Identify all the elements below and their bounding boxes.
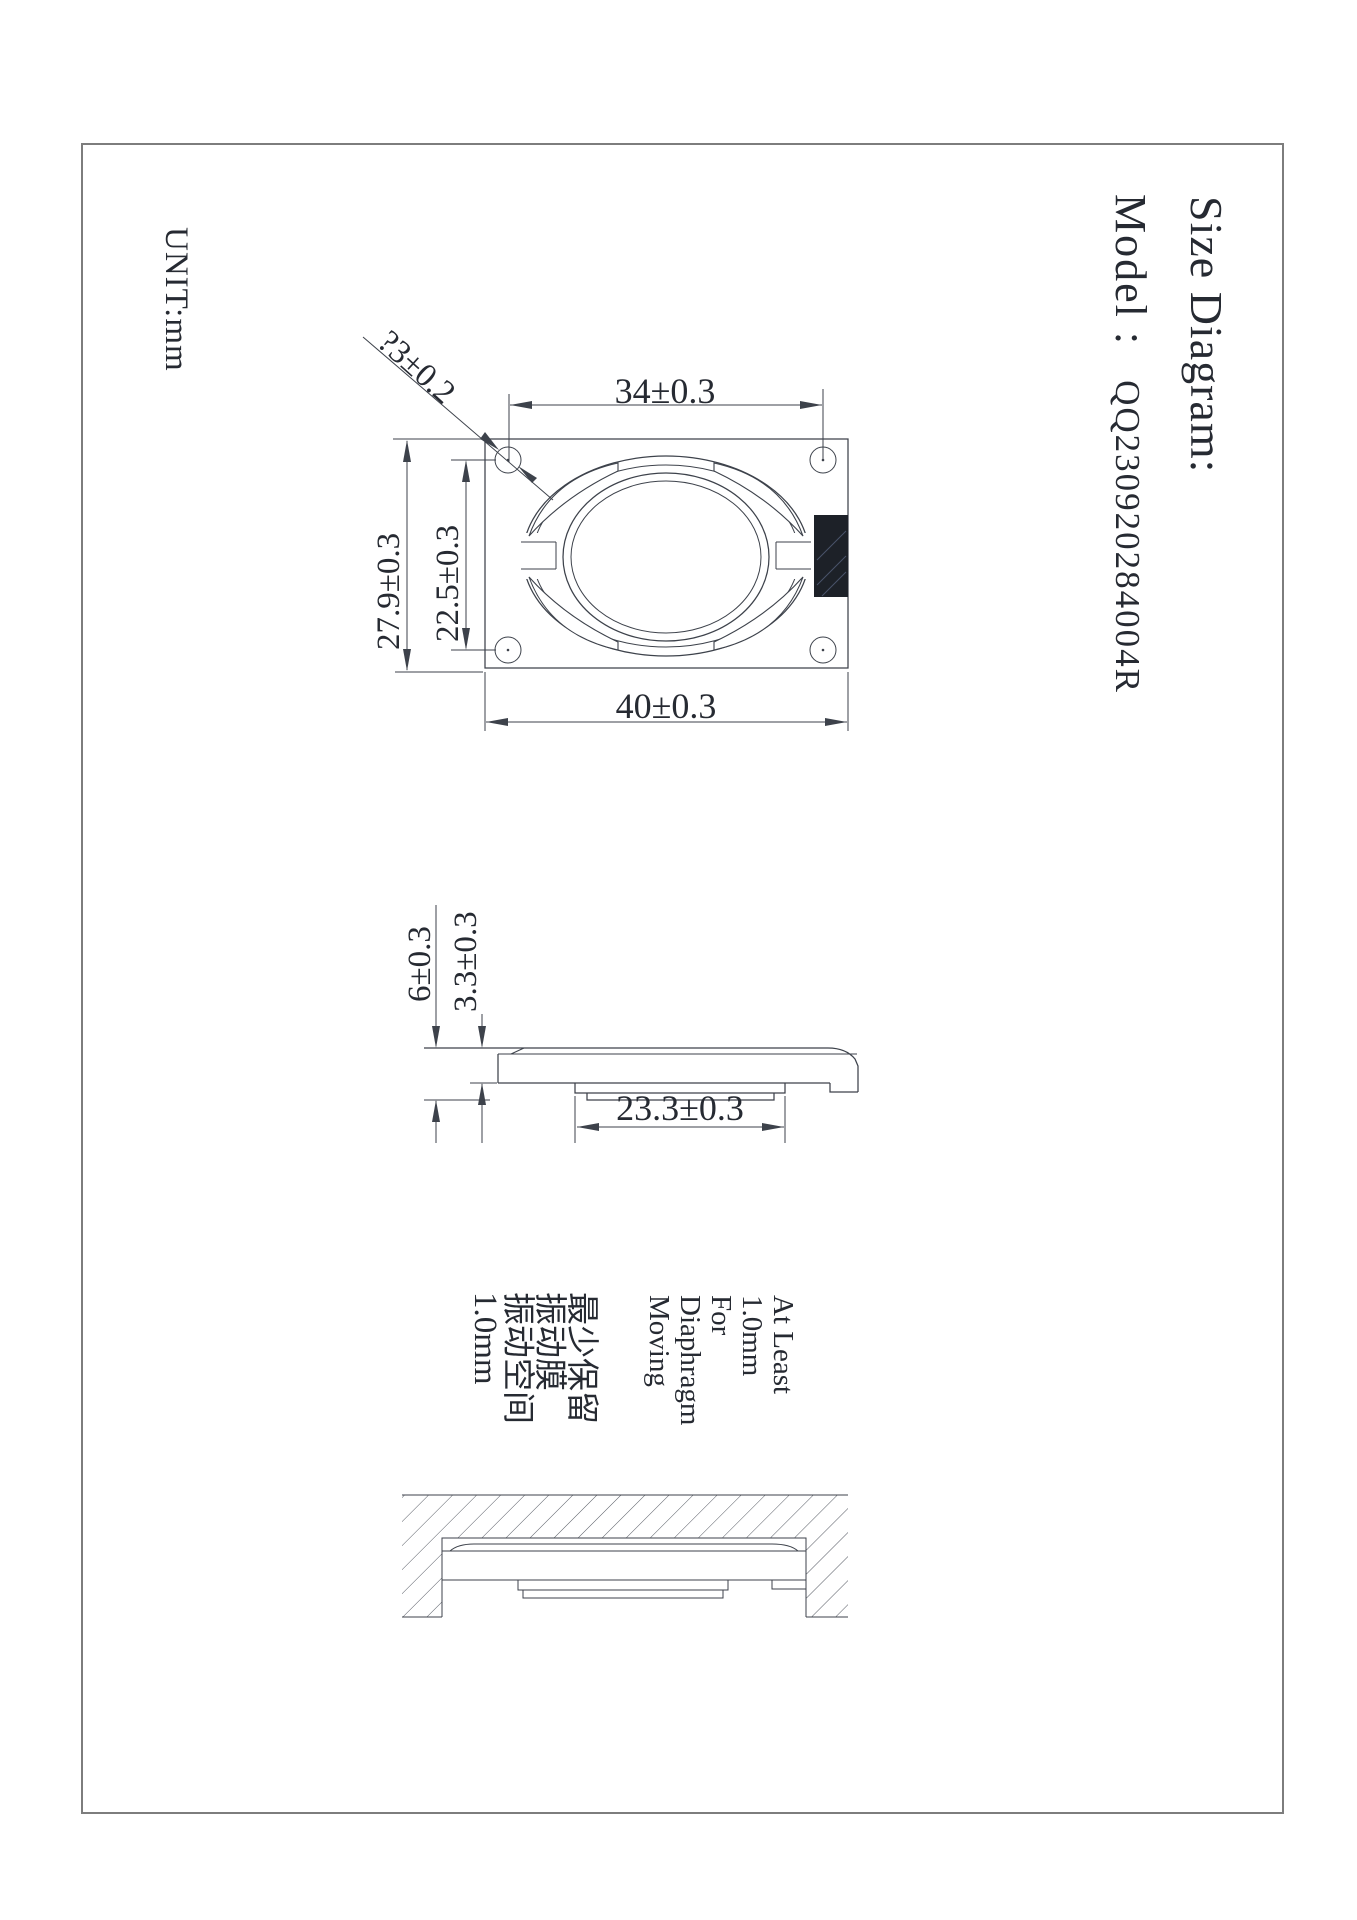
model-value: QQ230920284004R — [1108, 380, 1147, 694]
dim-overall-width: 40±0.3 — [616, 688, 717, 724]
note-line: Diaphragm — [674, 1295, 705, 1425]
enclosure-hatch-region — [402, 1495, 848, 1617]
model-line: Model :QQ230920284004R — [1108, 194, 1152, 694]
note-line: Moving — [643, 1295, 674, 1425]
cone-outer-edge — [563, 473, 769, 641]
note-line: 最少保留 — [565, 1292, 597, 1424]
terminal-pad — [814, 515, 848, 597]
model-label: Model : — [1106, 194, 1155, 346]
dim-hole-span-horizontal: 34±0.3 — [615, 373, 716, 409]
cone-inner-edge — [571, 481, 761, 633]
clearance-note-chinese: 最少保留 振动膜 振动空间 1.0mm — [469, 1292, 597, 1424]
side-profile — [424, 1048, 858, 1092]
drawing-sheet: Size Diagram: Model :QQ230920284004R UNI… — [0, 0, 1357, 1920]
sheet-title: Size Diagram: — [1183, 196, 1229, 473]
note-line: 1.0mm — [736, 1295, 767, 1425]
note-line: For — [705, 1295, 736, 1425]
note-line: 1.0mm — [469, 1292, 501, 1424]
section-diaphragm-line — [450, 1544, 798, 1551]
section-terminal-foot — [772, 1580, 806, 1589]
basket-spoke — [714, 577, 803, 650]
section-magnet — [523, 1590, 723, 1598]
dim-magnet-width: 23.3±0.3 — [616, 1090, 744, 1126]
basket-spoke — [529, 577, 618, 650]
section-washer — [518, 1580, 728, 1590]
dim-overall-height: 27.9±0.3 — [373, 533, 406, 650]
note-line: At Least — [767, 1295, 798, 1425]
section-view-drawing — [402, 1495, 848, 1617]
note-line: 振动空间 — [501, 1292, 533, 1424]
dim-total-thickness: 6±0.3 — [404, 926, 437, 1002]
unit-label: UNIT:mm — [159, 227, 192, 372]
terminal-foot — [830, 1083, 858, 1092]
dim-hole-span-vertical: 22.5±0.3 — [432, 525, 465, 642]
note-line: 振动膜 — [533, 1292, 565, 1424]
dim-frame-thickness: 3.3±0.3 — [450, 911, 483, 1012]
gasket-chamfer — [511, 1048, 524, 1054]
clearance-note-english: At Least 1.0mm For Diaphragm Moving — [643, 1295, 798, 1425]
